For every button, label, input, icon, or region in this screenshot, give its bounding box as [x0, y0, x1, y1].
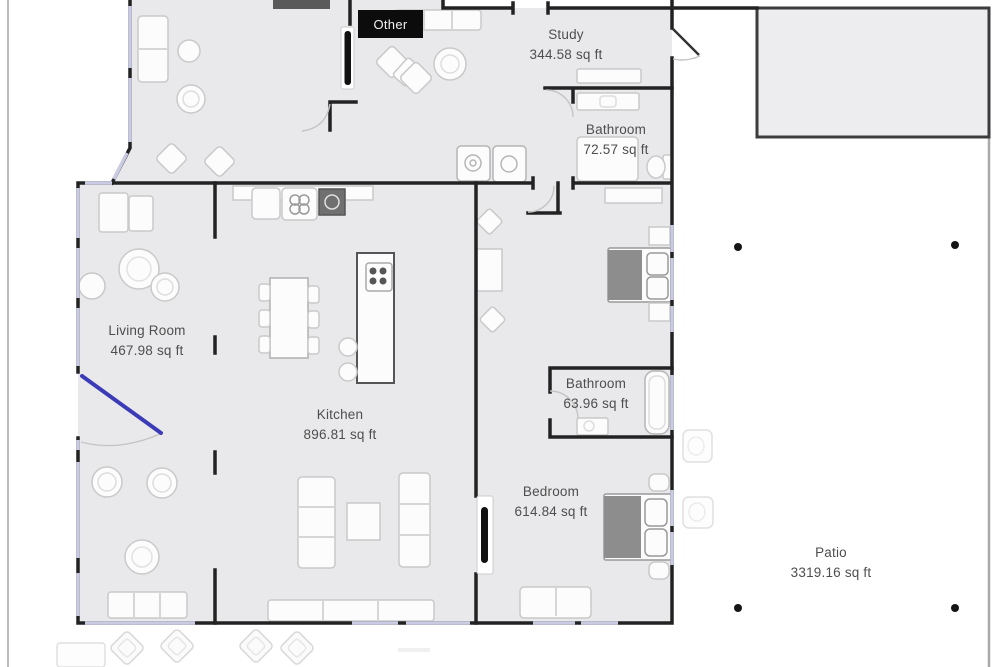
pillow: [645, 529, 667, 556]
pillow: [647, 277, 668, 299]
room-area: 614.84 sq ft: [515, 502, 588, 522]
outdoor-chairs: [109, 628, 314, 665]
room-area: 896.81 sq ft: [304, 425, 377, 445]
sofa: [399, 473, 430, 567]
cabinet: [129, 196, 153, 231]
armchair: [147, 468, 177, 498]
dresser: [477, 249, 502, 291]
sink-cabinet: [252, 188, 280, 219]
bed-blanket: [604, 496, 641, 558]
bed: [604, 494, 672, 560]
patio-post: [734, 604, 742, 612]
dryer: [493, 146, 526, 182]
console-table: [577, 69, 641, 83]
pillow: [647, 253, 668, 275]
patio-post: [951, 241, 959, 249]
bar-stool: [339, 338, 357, 356]
room-label-living-room: Living Room 467.98 sq ft: [108, 321, 185, 361]
toilet: [577, 418, 608, 435]
armchair: [434, 48, 466, 80]
nightstand: [649, 474, 669, 491]
armchair: [151, 273, 179, 301]
room-name: Bedroom: [515, 482, 588, 502]
room-area: 72.57 sq ft: [583, 140, 648, 160]
shelf: [605, 188, 662, 203]
room-name: Bathroom: [563, 374, 628, 394]
patio-post: [734, 243, 742, 251]
dining-table: [270, 278, 308, 358]
stove: [282, 188, 317, 220]
room-name: Kitchen: [304, 405, 377, 425]
room-name: Bathroom: [583, 120, 648, 140]
cabinet: [99, 193, 128, 232]
coffee-table: [347, 503, 380, 540]
other-room-label: Other: [373, 17, 407, 32]
room-label-patio: Patio 3319.16 sq ft: [791, 543, 872, 583]
round-table: [125, 540, 159, 574]
patio-door-leaf: [673, 29, 699, 55]
armchair: [79, 273, 105, 299]
washer: [457, 146, 490, 181]
oven: [319, 189, 345, 215]
outdoor-fixture: [683, 497, 713, 528]
outdoor-bench: [57, 643, 105, 667]
room-label-study: Study 344.58 sq ft: [530, 25, 603, 65]
armchair: [92, 467, 122, 497]
room-area: 63.96 sq ft: [563, 394, 628, 414]
room-name: Living Room: [108, 321, 185, 341]
room-label-bathroom-lower: Bathroom 63.96 sq ft: [563, 374, 628, 414]
sofa: [298, 477, 335, 568]
pocket-door: [341, 27, 354, 89]
bench-sofa: [268, 600, 434, 621]
patio-post: [951, 604, 959, 612]
fireplace: [273, 0, 330, 9]
room-name: Study: [530, 25, 603, 45]
nightstand: [649, 303, 670, 321]
room-area: 3319.16 sq ft: [791, 563, 872, 583]
toilet: [647, 156, 665, 178]
bed-blanket: [608, 250, 642, 300]
nightstand: [649, 227, 670, 245]
pocket-door: [477, 496, 493, 574]
bar-stool: [339, 363, 357, 381]
room-label-bedroom: Bedroom 614.84 sq ft: [515, 482, 588, 522]
pillow: [645, 499, 667, 526]
annex-structure: [757, 8, 989, 137]
room-area: 344.58 sq ft: [530, 45, 603, 65]
room-label-kitchen: Kitchen 896.81 sq ft: [304, 405, 377, 445]
armchair: [177, 85, 205, 113]
nightstand: [649, 562, 669, 579]
other-room-badge: Other: [358, 10, 423, 38]
room-label-bathroom-upper: Bathroom 72.57 sq ft: [583, 120, 648, 160]
island-hob: [366, 263, 392, 291]
floor-plan-canvas: Other Study 344.58 sq ft Bathroom 72.57 …: [0, 0, 1000, 667]
bed: [608, 248, 671, 302]
sofa: [108, 592, 187, 618]
room-area: 467.98 sq ft: [108, 341, 185, 361]
side-table: [178, 40, 200, 62]
room-name: Patio: [791, 543, 872, 563]
